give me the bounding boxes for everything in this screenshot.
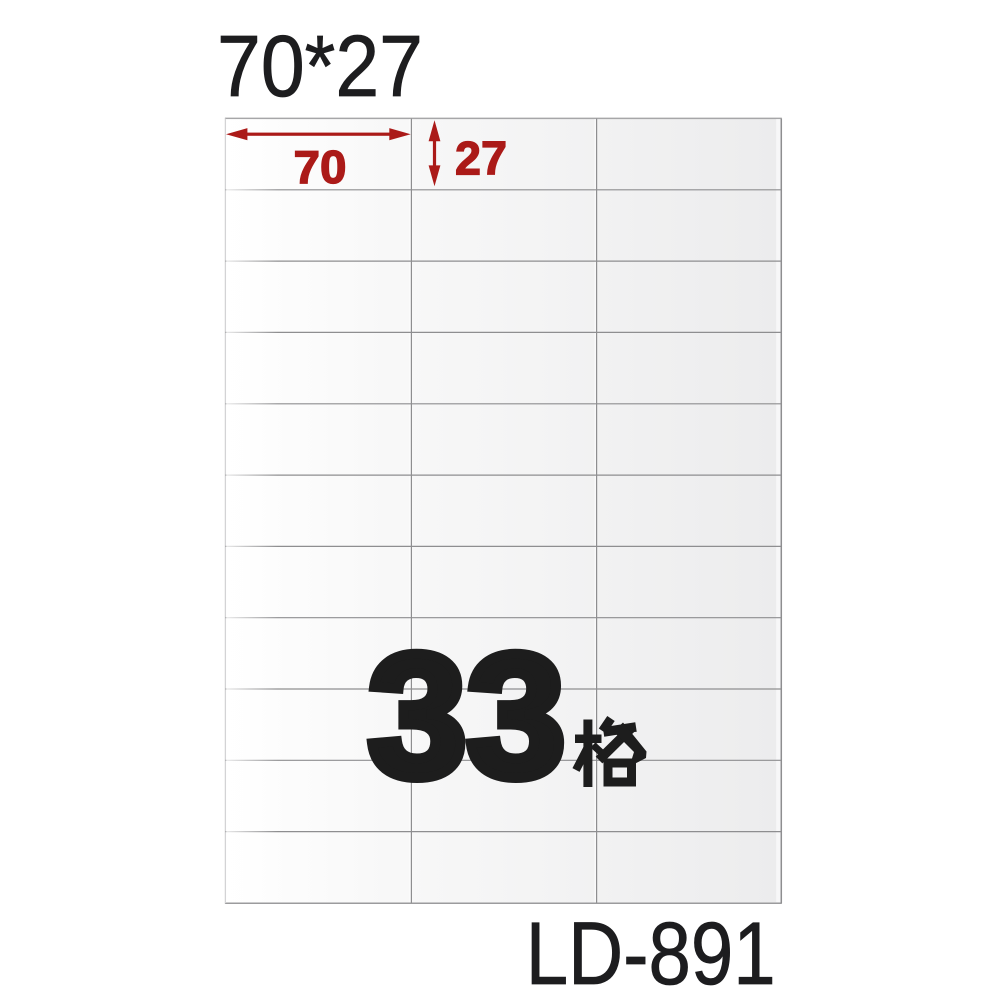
svg-text:LD-891: LD-891 <box>526 903 776 1000</box>
svg-text:70: 70 <box>294 141 347 193</box>
svg-text:70*27: 70*27 <box>217 18 423 115</box>
svg-text:27: 27 <box>455 132 507 185</box>
svg-text:33: 33 <box>368 619 566 814</box>
